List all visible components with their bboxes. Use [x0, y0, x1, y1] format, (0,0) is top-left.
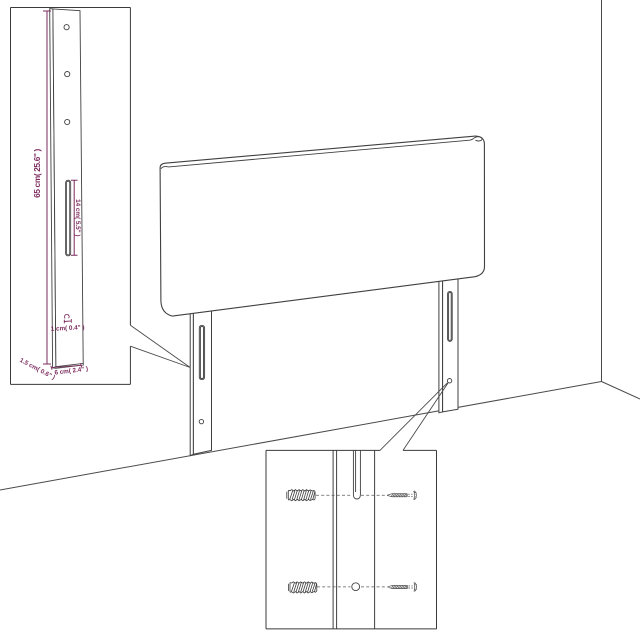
- svg-text:14 cm( 5.5" ): 14 cm( 5.5" ): [74, 199, 81, 236]
- svg-text:65 cm( 25.6" ): 65 cm( 25.6" ): [32, 148, 42, 197]
